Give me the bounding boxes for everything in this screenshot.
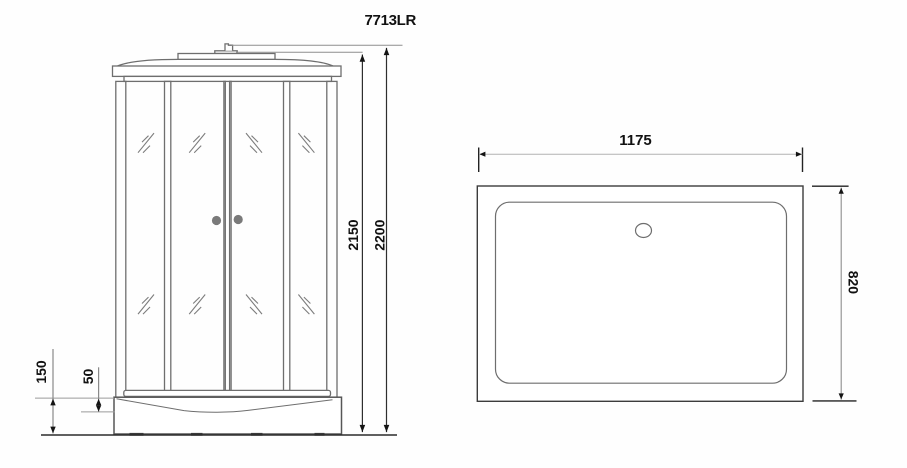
svg-text:50: 50 [80, 369, 96, 385]
svg-text:2200: 2200 [372, 219, 388, 250]
svg-text:820: 820 [845, 271, 861, 295]
svg-text:1175: 1175 [619, 132, 652, 149]
svg-text:7713LR: 7713LR [365, 12, 417, 29]
svg-text:2150: 2150 [345, 219, 361, 250]
svg-text:150: 150 [33, 360, 49, 384]
